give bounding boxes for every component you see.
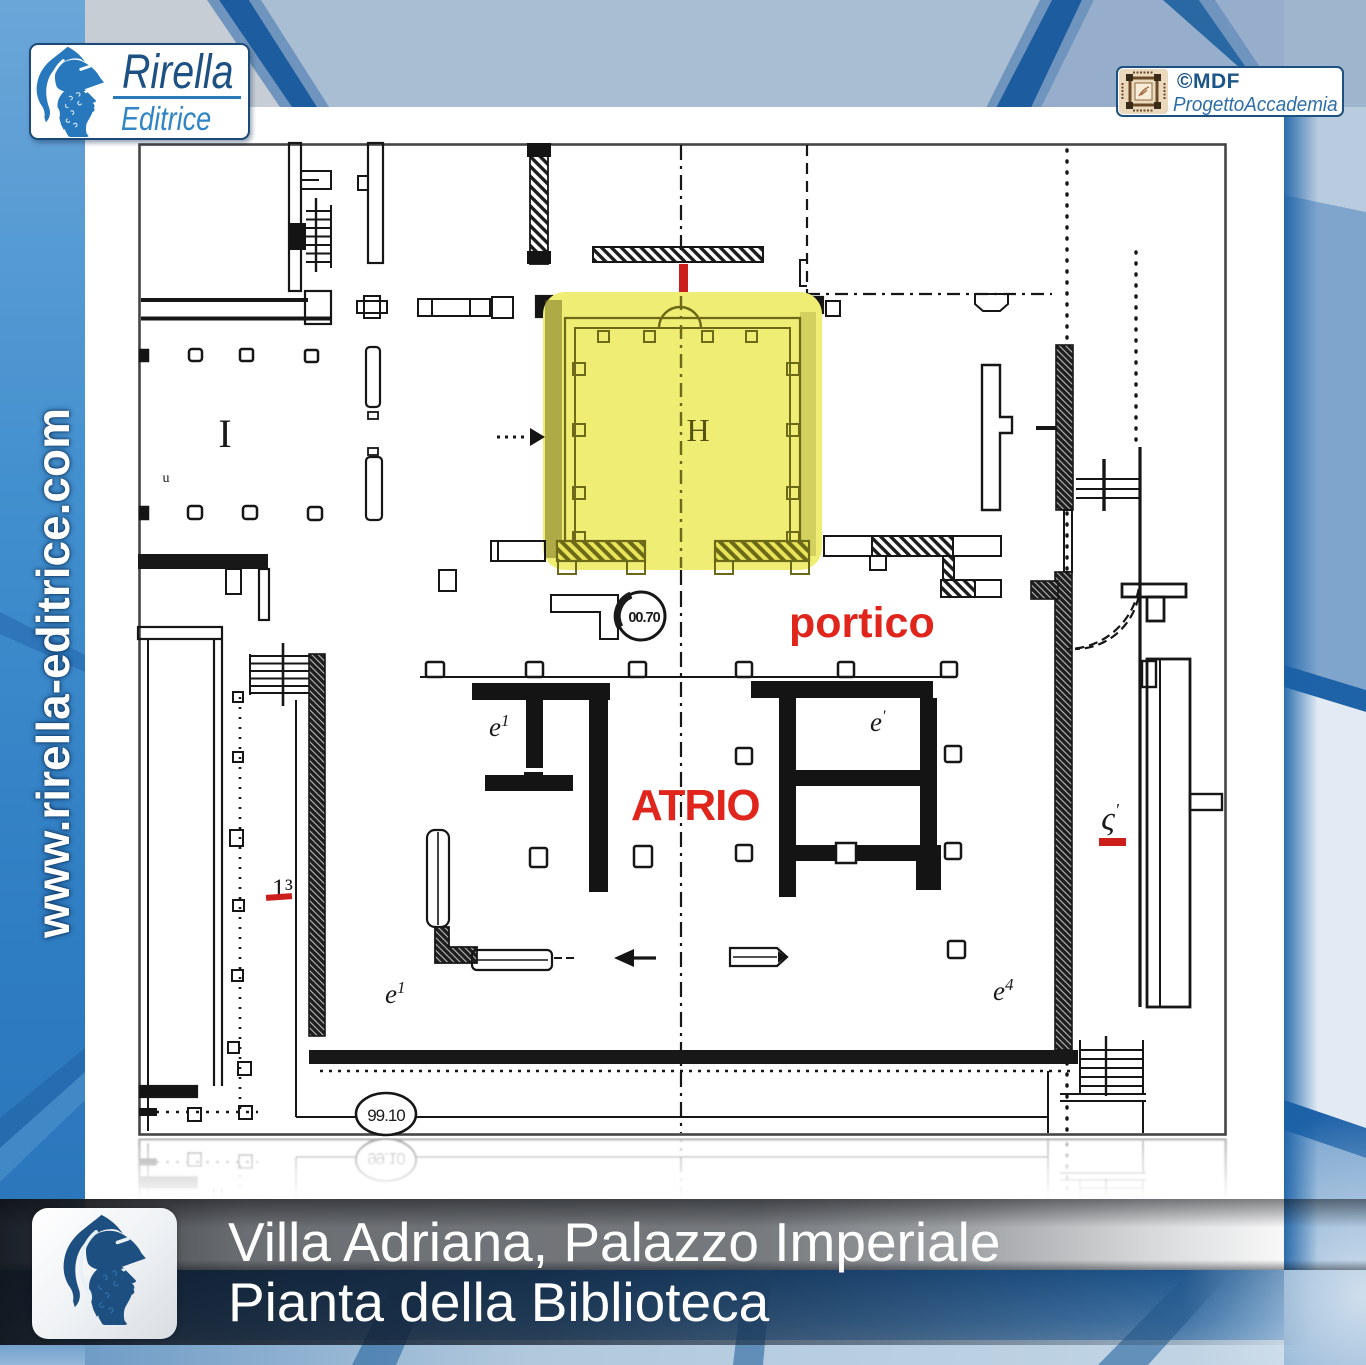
svg-text:I: I (218, 411, 231, 456)
svg-text:u: u (163, 471, 170, 486)
svg-text:portico: portico (789, 599, 935, 647)
svg-text:H: H (686, 412, 709, 448)
svg-text:ATRIO: ATRIO (631, 781, 760, 830)
svg-text:99.10: 99.10 (367, 1106, 405, 1125)
svg-text:00.70: 00.70 (628, 610, 660, 626)
